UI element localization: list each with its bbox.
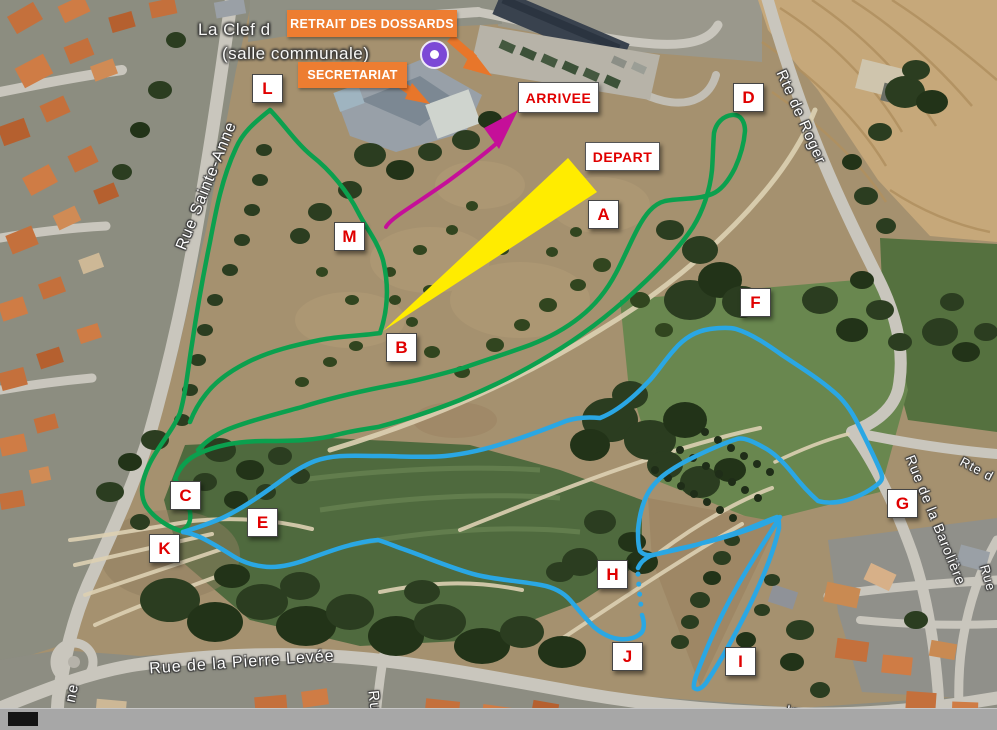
route-marker-I: I	[725, 647, 756, 676]
course-blue-route	[183, 328, 882, 689]
route-marker-C: C	[170, 481, 201, 510]
route-marker-F: F	[740, 288, 771, 317]
arrivee-sign: ARRIVEE	[518, 82, 599, 113]
depart-sign: DEPART	[585, 142, 660, 171]
route-marker-M: M	[334, 222, 365, 251]
venue-marker-icon	[420, 40, 449, 69]
route-marker-B: B	[386, 333, 417, 362]
retrait-des-dossards-callout: RETRAIT DES DOSSARDS	[287, 10, 457, 37]
place-name-line1: La Clef d	[198, 20, 271, 40]
start-funnel-shape	[383, 158, 597, 331]
place-name-line2: (salle communale)	[222, 44, 369, 64]
venue-marker-glyph	[430, 50, 439, 59]
course-overlay	[0, 0, 997, 730]
finish-chute-line	[386, 143, 497, 227]
route-marker-G: G	[887, 489, 918, 518]
secretariat-callout: SECRETARIAT	[298, 62, 407, 88]
route-marker-H: H	[597, 560, 628, 589]
finish-chute-wedge	[484, 110, 518, 149]
course-map[interactable]: La Clef d (salle communale) RETRAIT DES …	[0, 0, 997, 730]
route-marker-K: K	[149, 534, 180, 563]
route-marker-L: L	[252, 74, 283, 103]
route-marker-J: J	[612, 642, 643, 671]
course-green-route	[142, 110, 745, 531]
route-marker-E: E	[247, 508, 278, 537]
horizontal-scrollbar[interactable]	[0, 708, 997, 730]
course-blue-dotted-segment	[638, 574, 642, 613]
route-marker-A: A	[588, 200, 619, 229]
route-marker-D: D	[733, 83, 764, 112]
horizontal-scrollbar-thumb[interactable]	[8, 712, 38, 726]
